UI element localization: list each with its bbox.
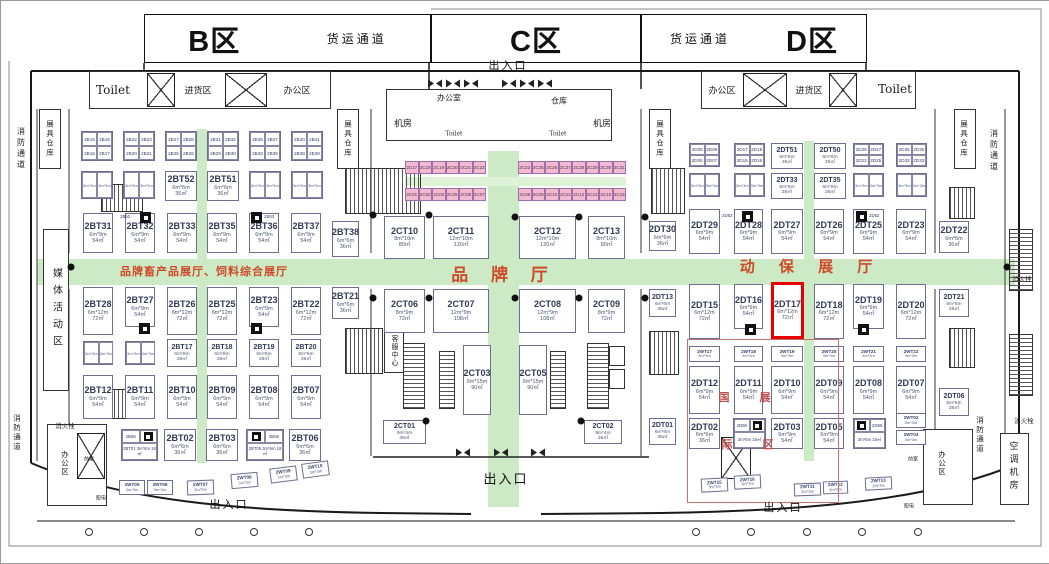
- booth-quad[interactable]: 2D082D092D062D07: [689, 143, 720, 167]
- booth-2BT51[interactable]: 2BT516m*6m36㎡: [207, 171, 239, 201]
- booth-small[interactable]: 3m*3m: [735, 174, 750, 196]
- booth-2DT15[interactable]: 2DT156m*12m72㎡: [689, 284, 720, 339]
- pillar-dot: [576, 214, 583, 221]
- column-circle: [692, 528, 700, 536]
- booth-2CT07[interactable]: 2CT0712m*9m108㎡: [433, 289, 489, 333]
- booth-small[interactable]: 3m*3m: [124, 172, 139, 198]
- utility-icon: [252, 432, 261, 441]
- booth-2D09[interactable]: 2D09: [705, 144, 720, 155]
- booth-pair[interactable]: 3m*3m3m*3m: [125, 341, 155, 365]
- booth-pair[interactable]: 3m*3m3m*3m: [689, 173, 720, 197]
- room-label: 前室: [908, 456, 918, 463]
- booth-strip-pink[interactable]: 2C012C022C032C052C062C07: [405, 188, 486, 201]
- booth-2WT22[interactable]: 2WT223m*3m: [896, 346, 926, 362]
- stairs-icon: [651, 168, 685, 214]
- booth-2C29[interactable]: 2C29: [586, 161, 600, 174]
- utility-icon: [858, 324, 869, 335]
- booth-2BT20[interactable]: 2BT206m*6m36㎡: [291, 339, 321, 367]
- door-icon: [446, 80, 460, 89]
- booth-2BT10[interactable]: 2BT106m*9m54㎡: [167, 375, 197, 419]
- pillar-dot: [642, 295, 649, 302]
- room-label: 消防通道: [12, 414, 23, 452]
- room-label: 媒体活动区: [49, 268, 64, 353]
- booth-small[interactable]: 3m*3m: [690, 174, 705, 196]
- booth-2D25[interactable]: 2D25: [869, 155, 884, 166]
- room-label: 展具仓库: [959, 120, 970, 158]
- door-icon: [502, 80, 516, 89]
- booth-2DT18[interactable]: 2DT186m*12m72㎡: [814, 284, 844, 339]
- column-circle: [858, 528, 866, 536]
- booth-2WT19[interactable]: 2WT193m*3m: [771, 346, 803, 362]
- booth-small[interactable]: 3m*3m: [705, 174, 720, 196]
- booth-2B20[interactable]: 2B20: [124, 146, 139, 160]
- booth-2DT23[interactable]: 2DT236m*9m54㎡: [896, 209, 926, 254]
- hall-label-animal: 动 保 展 厅: [740, 256, 883, 277]
- booth-2DT05[interactable]: 2DT056m*9m54㎡: [814, 418, 844, 449]
- room-label: 空调机房: [1008, 441, 1021, 493]
- booth-2DT06[interactable]: 2DT066m*6m36㎡: [939, 388, 969, 416]
- room-label: 进货区: [795, 84, 822, 97]
- booth-2DT02[interactable]: 2DT026m*6m36㎡: [689, 418, 720, 449]
- booth-2CT02[interactable]: 2CT029m*4m36㎡: [584, 420, 622, 444]
- booth-small[interactable]: 3m*3m: [250, 172, 265, 198]
- pillar-dot: [512, 214, 519, 221]
- column-circle: [85, 528, 93, 536]
- booth-2BT38[interactable]: 2BT386m*6m36㎡: [332, 221, 359, 257]
- booth-2B39[interactable]: 2B39: [307, 146, 322, 160]
- booth-2C06[interactable]: 2C06: [459, 188, 473, 201]
- booth-2BT37[interactable]: 2BT376m*9m54㎡: [291, 213, 321, 253]
- booth-pair[interactable]: 3m*3m3m*3m: [81, 171, 113, 199]
- escalator-icon: [403, 343, 425, 409]
- room-label: 客服中心: [389, 335, 399, 367]
- booth-2D27[interactable]: 2D27: [869, 144, 884, 155]
- booth-2WT15[interactable]: 2WT153m*3m: [701, 477, 729, 492]
- booth-2WT20[interactable]: 2WT203m*3m: [814, 346, 844, 362]
- booth-2DT22[interactable]: 2DT226m*6m36㎡: [939, 221, 969, 253]
- booth-strip-pink[interactable]: 2C172C182C192C202C212C22: [405, 161, 486, 174]
- booth-2DT13[interactable]: 2DT136m*6m36㎡: [649, 289, 676, 317]
- room-label: 消防通道: [989, 129, 1000, 173]
- booth-2B38[interactable]: 2B38: [292, 146, 307, 160]
- booth-quad[interactable]: 2B362B372B332B35: [249, 131, 281, 161]
- booth-2C21[interactable]: 2C21: [459, 161, 473, 174]
- booth-2B17[interactable]: 2B17: [97, 146, 112, 160]
- booth-2D07[interactable]: 2D07: [705, 155, 720, 166]
- booth-2DT27[interactable]: 2DT276m*9m54㎡: [771, 209, 803, 254]
- booth-2DT17[interactable]: 2DT176m*12m72㎡: [771, 282, 804, 339]
- booth-2DT29[interactable]: 2DT296m*9m54㎡: [689, 209, 720, 254]
- room-label: 消防通道: [975, 416, 986, 454]
- booth-2DT50[interactable]: 2DT506m*6m36㎡: [814, 143, 846, 169]
- booth-2B37[interactable]: 2B37: [265, 132, 280, 146]
- booth-2CT12[interactable]: 2CT1212m*10m120㎡: [519, 216, 576, 259]
- booth-pair[interactable]: 3m*3m3m*3m: [896, 173, 927, 197]
- booth-2D23[interactable]: 2D23: [854, 155, 869, 166]
- booth-2D15[interactable]: 2D15: [735, 155, 750, 166]
- booth-pair[interactable]: 3m*3m3m*3m: [123, 171, 155, 199]
- stairs-icon: [949, 187, 975, 219]
- booth-2C02[interactable]: 2C02: [419, 188, 433, 201]
- booth-2WT17[interactable]: 2WT173m*3m: [689, 346, 720, 362]
- booth-2BT21[interactable]: 2BT216m*6m36㎡: [332, 287, 359, 319]
- booth-2BT09[interactable]: 2BT096m*9m54㎡: [207, 375, 237, 419]
- booth-2DT30[interactable]: 2DT306m*6m36㎡: [649, 221, 676, 251]
- utility-icon: [753, 421, 762, 430]
- booth-small[interactable]: 3m*3m: [97, 172, 112, 198]
- booth-small[interactable]: 3m*3m: [141, 342, 156, 364]
- room-label: 消火栓: [55, 420, 75, 430]
- room-label: 配电: [96, 495, 106, 502]
- booth-strip-pink[interactable]: 2C232C252C262C272C282C292C302C31: [518, 161, 626, 174]
- booth-2B29[interactable]: 2B29: [208, 146, 223, 160]
- booth-2C13[interactable]: 2C13: [586, 188, 600, 201]
- booth-2BT26[interactable]: 2BT266m*12m72㎡: [167, 287, 197, 335]
- utility-icon: [742, 211, 753, 222]
- booth-2C01[interactable]: 2C01: [405, 188, 419, 201]
- booth-2WT18[interactable]: 2WT183m*3m: [734, 346, 763, 362]
- booth-2BT17[interactable]: 2BT176m*6m36㎡: [167, 339, 197, 367]
- column-circle: [803, 528, 811, 536]
- booth-2C17[interactable]: 2C17: [405, 161, 419, 174]
- booth-pair[interactable]: 3m*3m3m*3m: [291, 171, 323, 199]
- booth-combo[interactable]: 2D563m*6m 18㎡: [733, 418, 766, 449]
- room-label: 展具仓库: [45, 120, 56, 158]
- booth-2C05[interactable]: 2C05: [446, 188, 460, 201]
- booth-quad[interactable]: 2B312B322B292B30: [207, 131, 239, 161]
- room-label: 展具仓库: [343, 120, 354, 158]
- booth-2WT05[interactable]: 2WT053m*3m: [119, 480, 145, 495]
- booth-2B25[interactable]: 2B25: [166, 146, 181, 160]
- booth-2B18[interactable]: 2B18: [82, 132, 97, 146]
- booth-2C15[interactable]: 2C15: [599, 188, 613, 201]
- booth-2C25[interactable]: 2C25: [532, 161, 546, 174]
- corridor-vertical-d: [804, 141, 814, 461]
- booth-2DT19[interactable]: 2DT196m*9m54㎡: [853, 284, 884, 329]
- utility-icon: [745, 324, 756, 335]
- booth-2DT35[interactable]: 2DT356m*6m36㎡: [814, 173, 846, 199]
- booth-small[interactable]: 3m*3m: [307, 172, 322, 198]
- stairs-icon: [345, 328, 383, 374]
- escalator-icon: [550, 351, 566, 409]
- booth-2B33[interactable]: 2B33: [250, 146, 265, 160]
- booth-2C22[interactable]: 2C22: [473, 161, 487, 174]
- booth-2B27[interactable]: 2B27: [166, 132, 181, 146]
- booth-2WT03[interactable]: 2WT033m*3m: [896, 430, 926, 445]
- booth-2BT02[interactable]: 2BT026m*6m36㎡: [164, 429, 196, 461]
- booth-2B32[interactable]: 2B32: [223, 132, 238, 146]
- booth-pair[interactable]: 3m*3m3m*3m: [249, 171, 281, 199]
- booth-small[interactable]: 3m*3m: [750, 174, 765, 196]
- column-circle: [305, 528, 313, 536]
- booth-small[interactable]: 3m*6m 18㎡: [854, 432, 885, 448]
- booth-2WT10[interactable]: 2WT103m*3m: [301, 460, 330, 479]
- booth-2B30[interactable]: 2B30: [223, 146, 238, 160]
- booth-small[interactable]: 3m*3m: [292, 172, 307, 198]
- booth-2D16[interactable]: 2D16: [750, 155, 765, 166]
- header-zone-d: 货运通道 D区: [641, 14, 867, 63]
- booth-2BT35[interactable]: 2BT356m*9m54㎡: [207, 213, 237, 253]
- booth-2C18[interactable]: 2C18: [419, 161, 433, 174]
- room-label: 办公区: [60, 450, 71, 476]
- booth-2WT13[interactable]: 2WT133m*3m: [865, 476, 893, 490]
- booth-2B26[interactable]: 2B26: [181, 146, 196, 160]
- booth-pair[interactable]: 3m*3m3m*3m: [853, 173, 884, 197]
- service-room-outline: [386, 89, 612, 141]
- room-label: 消火栓: [1014, 415, 1034, 425]
- pillar-dot: [423, 418, 430, 425]
- door-icon: [464, 80, 478, 89]
- header-zone-c: C区: [431, 14, 641, 63]
- booth-small[interactable]: 3m*3m: [869, 174, 884, 196]
- booth-quad[interactable]: 2D172D182D152D16: [734, 143, 765, 167]
- booth-2C19[interactable]: 2C19: [432, 161, 446, 174]
- booth-2C31[interactable]: 2C31: [613, 161, 627, 174]
- booth-2D18[interactable]: 2D18: [750, 144, 765, 155]
- booth-combo[interactable]: 2B562BT01 3m*6m 18㎡: [121, 429, 158, 461]
- booth-2D17[interactable]: 2D17: [735, 144, 750, 155]
- booth-quad[interactable]: 2B182B192B162B17: [81, 131, 113, 161]
- booth-2C20[interactable]: 2C20: [446, 161, 460, 174]
- room-label: Toilet: [446, 131, 463, 138]
- booth-2BT23[interactable]: 2BT236m*9m54㎡: [249, 287, 279, 327]
- door-icon: [520, 80, 534, 89]
- booth-2CT05[interactable]: 2CT056m*15m90㎡: [519, 345, 547, 415]
- booth-2C12[interactable]: 2C12: [572, 188, 586, 201]
- utility-icon: [139, 323, 150, 334]
- entrance-bottom-left: 出入口: [210, 496, 249, 512]
- pillar-dot: [426, 295, 433, 302]
- pillar-dot: [512, 295, 519, 302]
- booth-2CT11[interactable]: 2CT1112m*10m120㎡: [433, 216, 489, 259]
- booth-2B31[interactable]: 2B31: [208, 132, 223, 146]
- booth-2D35[interactable]: 2D35: [897, 144, 912, 155]
- booth-quad[interactable]: 2B272B282B252B26: [165, 131, 197, 161]
- booth-quad[interactable]: 2D262D272D232D25: [853, 143, 884, 167]
- booth-2C26[interactable]: 2C26: [545, 161, 559, 174]
- booth-quad[interactable]: 2D352D362D322D33: [896, 143, 927, 167]
- booth-2CT10[interactable]: 2CT108m*10m80㎡: [384, 216, 425, 259]
- booth-2CT01[interactable]: 2CT019m*4m36㎡: [383, 420, 426, 444]
- booth-2WT12[interactable]: 2WT123m*3m: [823, 481, 848, 495]
- booth-2BT08[interactable]: 2BT086m*9m54㎡: [249, 375, 279, 419]
- booth-2BT18[interactable]: 2BT186m*6m36㎡: [207, 339, 237, 367]
- booth-small[interactable]: 3m*3m: [854, 174, 869, 196]
- booth-2BT03[interactable]: 2BT036m*6m36㎡: [206, 429, 238, 461]
- booth-2BT07[interactable]: 2BT076m*9m54㎡: [291, 375, 321, 419]
- booth-2D06[interactable]: 2D06: [690, 155, 705, 166]
- entrance-bottom-center: 出入口: [483, 469, 528, 488]
- booth-2BT12[interactable]: 2BT126m*9m54㎡: [83, 375, 113, 419]
- service-room-outline: [923, 429, 973, 505]
- pillar-dot: [578, 418, 585, 425]
- booth-pair[interactable]: 3m*3m3m*3m: [734, 173, 765, 197]
- booth-2BT28[interactable]: 2BT286m*12m72㎡: [83, 287, 113, 335]
- booth-2BT27[interactable]: 2BT276m*9m54㎡: [125, 287, 155, 327]
- utility-icon-cell: [140, 430, 158, 443]
- booth-2DT09[interactable]: 2DT096m*9m54㎡: [814, 366, 844, 414]
- booth-2BT22[interactable]: 2BT226m*12m72㎡: [291, 287, 321, 335]
- booth-2DT07[interactable]: 2DT076m*9m54㎡: [896, 366, 926, 414]
- booth-2BT06[interactable]: 2BT066m*6m36㎡: [289, 429, 321, 461]
- service-room-outline: [609, 369, 625, 389]
- cargo-corridor-left-label: 货运通道: [327, 30, 387, 47]
- elevator-icon: [147, 73, 175, 107]
- booth-2DT26[interactable]: 2DT266m*9m54㎡: [814, 209, 844, 254]
- booth-2DT12[interactable]: 2DT126m*9m54㎡: [689, 366, 720, 414]
- utility-icon: [251, 323, 262, 334]
- booth-2CT08[interactable]: 2CT0812m*9m108㎡: [519, 289, 576, 333]
- booth-2WT21[interactable]: 2WT213m*3m: [853, 346, 884, 362]
- booth-small[interactable]: 2BT05 3m*6m 18㎡: [247, 443, 283, 460]
- booth-2WT07[interactable]: 2WT073m*3m: [187, 480, 215, 496]
- booth-2B16[interactable]: 2B16: [82, 146, 97, 160]
- booth-2WT16[interactable]: 2WT163m*3m: [734, 474, 762, 489]
- booth-2WT02[interactable]: 2WT023m*3m: [896, 413, 926, 428]
- room-label: 办公区: [708, 84, 735, 97]
- booth-2B22[interactable]: 2B22: [124, 132, 139, 146]
- booth-2CT13[interactable]: 2CT138m*10m80㎡: [588, 216, 625, 259]
- booth-2C28[interactable]: 2C28: [572, 161, 586, 174]
- booth-small[interactable]: 3m*3m: [897, 174, 912, 196]
- booth-2C03[interactable]: 2C03: [432, 188, 446, 201]
- utility-icon-label: 2B53: [264, 214, 274, 219]
- room-label: 配电: [904, 503, 914, 510]
- utility-icon-label: 2D52: [869, 213, 880, 218]
- room-label: 消火栓: [1012, 273, 1032, 283]
- booth-2DT21[interactable]: 2DT216m*6m36㎡: [939, 289, 969, 317]
- room-label: Toilet: [550, 131, 567, 138]
- booth-2B28[interactable]: 2B28: [181, 132, 196, 146]
- pillar-dot: [426, 212, 433, 219]
- utility-icon-cell: [854, 419, 870, 432]
- booth-2C11[interactable]: 2C11: [559, 188, 573, 201]
- booth-small[interactable]: 3m*3m: [265, 172, 280, 198]
- room-label: Toilet: [96, 83, 130, 97]
- booth-small[interactable]: 3m*3m: [912, 174, 927, 196]
- column-circle: [195, 528, 203, 536]
- room-label: 展具仓库: [655, 120, 666, 158]
- booth-2B21[interactable]: 2B21: [139, 146, 154, 160]
- room-label: 机房: [593, 117, 611, 130]
- booth-2CT03[interactable]: 2CT036m*15m90㎡: [463, 345, 491, 415]
- booth-2WT06[interactable]: 2WT063m*3m: [147, 480, 173, 495]
- booth-2C09[interactable]: 2C09: [532, 188, 546, 201]
- utility-icon: [857, 421, 866, 430]
- booth-2BT33[interactable]: 2BT336m*9m54㎡: [167, 213, 197, 253]
- booth-quad[interactable]: 2B222B232B202B21: [123, 131, 155, 161]
- booth-2C08[interactable]: 2C08: [518, 188, 532, 201]
- booth-2C27[interactable]: 2C27: [559, 161, 573, 174]
- booth-2DT03[interactable]: 2DT036m*9m54㎡: [771, 418, 803, 449]
- booth-small[interactable]: 3m*3m: [139, 172, 154, 198]
- cargo-corridor-right-label: 货运通道: [670, 30, 730, 47]
- booth-small[interactable]: 3m*3m: [84, 342, 99, 364]
- booth-strip-pink[interactable]: 2C082C092C102C112C122C132C152C16: [518, 188, 626, 201]
- door-icon: [538, 80, 552, 89]
- booth-2BT19[interactable]: 2BT196m*6m36㎡: [249, 339, 279, 367]
- booth-2WT09[interactable]: 2WT093m*3m: [269, 465, 298, 483]
- utility-icon-cell: [247, 430, 265, 443]
- booth-2BT11[interactable]: 2BT116m*9m54㎡: [125, 375, 155, 419]
- booth-small[interactable]: 3m*3m: [99, 342, 114, 364]
- booth-2C23[interactable]: 2C23: [518, 161, 532, 174]
- room-label: Toilet: [878, 82, 912, 96]
- room-label: 办公室: [437, 93, 461, 104]
- exhibition-floor-plan: B区 货运通道 C区 货运通道 D区 出入口 出入口 出入口 出入口 品牌畜产品…: [0, 0, 1049, 564]
- booth-small[interactable]: 3m*3m: [82, 172, 97, 198]
- booth-pair[interactable]: 3m*3m3m*3m: [83, 341, 113, 365]
- escalator-icon: [587, 343, 609, 409]
- booth-2WT08[interactable]: 2WT083m*3m: [230, 472, 258, 489]
- booth-2B23[interactable]: 2B23: [139, 132, 154, 146]
- booth-2DT16[interactable]: 2DT166m*9m54㎡: [734, 284, 763, 329]
- international-zone-char: 展: [760, 389, 771, 405]
- room-label: 进货区: [184, 84, 211, 97]
- booth-small[interactable]: 3m*3m: [126, 342, 141, 364]
- booth-combo[interactable]: 2B552BT05 3m*6m 18㎡: [246, 429, 284, 461]
- booth-small: 2B55: [265, 430, 283, 443]
- booth-2WT11[interactable]: 2WT113m*3m: [794, 483, 821, 497]
- booth-2C10[interactable]: 2C10: [545, 188, 559, 201]
- elevator-icon: [743, 73, 787, 107]
- booth-2DT51[interactable]: 2DT516m*6m36㎡: [771, 143, 803, 169]
- column-circle: [747, 528, 755, 536]
- booth-2C16[interactable]: 2C16: [613, 188, 627, 201]
- booth-2DT10[interactable]: 2DT106m*9m54㎡: [771, 366, 803, 414]
- pillar-dot: [1004, 264, 1011, 271]
- zone-b-label: B区: [188, 18, 240, 60]
- booth-2B41[interactable]: 2B41: [307, 132, 322, 146]
- booth-2CT09[interactable]: 2CT098m*9m72㎡: [588, 289, 625, 333]
- booth-small[interactable]: 3m*6m 18㎡: [734, 432, 765, 448]
- booth-combo[interactable]: 2D553m*6m 18㎡: [853, 418, 886, 449]
- elevator-icon: [225, 73, 267, 107]
- booth-2DT20[interactable]: 2DT206m*12m72㎡: [896, 284, 926, 339]
- room-label: 办公区: [283, 84, 310, 97]
- booth-2C30[interactable]: 2C30: [599, 161, 613, 174]
- booth-2D33[interactable]: 2D33: [912, 155, 927, 166]
- booth-small: 2D56: [734, 419, 750, 432]
- booth-2B36[interactable]: 2B36: [250, 132, 265, 146]
- booth-2B35[interactable]: 2B35: [265, 146, 280, 160]
- pillar-dot: [370, 212, 377, 219]
- booth-quad[interactable]: 2B402B412B382B39: [291, 131, 323, 161]
- zone-d-label: D区: [786, 18, 838, 60]
- door-icon: [494, 449, 508, 458]
- booth-2BT52[interactable]: 2BT526m*6m36㎡: [165, 171, 197, 201]
- booth-2DT33[interactable]: 2DT336m*6m36㎡: [771, 173, 803, 199]
- booth-2BT31[interactable]: 2BT316m*9m54㎡: [83, 213, 113, 253]
- booth-2DT08[interactable]: 2DT086m*9m54㎡: [853, 366, 884, 414]
- booth-2D26[interactable]: 2D26: [854, 144, 869, 155]
- column-circle: [250, 528, 258, 536]
- booth-small[interactable]: 2BT01 3m*6m 18㎡: [122, 443, 157, 460]
- booth-2B40[interactable]: 2B40: [292, 132, 307, 146]
- entrance-bottom-right: 出入口: [764, 499, 803, 515]
- booth-2DT01[interactable]: 2DT016m*6m36㎡: [649, 418, 676, 445]
- utility-icon-cell: [750, 419, 766, 432]
- room-label: 消防通道: [16, 127, 27, 171]
- booth-2CT06[interactable]: 2CT068m*9m72㎡: [384, 289, 425, 333]
- booth-2D08[interactable]: 2D08: [690, 144, 705, 155]
- booth-2C07[interactable]: 2C07: [473, 188, 487, 201]
- booth-2D36[interactable]: 2D36: [912, 144, 927, 155]
- booth-2B19[interactable]: 2B19: [97, 132, 112, 146]
- booth-2D32[interactable]: 2D32: [897, 155, 912, 166]
- booth-2BT25[interactable]: 2BT256m*12m72㎡: [207, 287, 237, 335]
- hall-label-brand: 品 牌 厅: [451, 261, 556, 286]
